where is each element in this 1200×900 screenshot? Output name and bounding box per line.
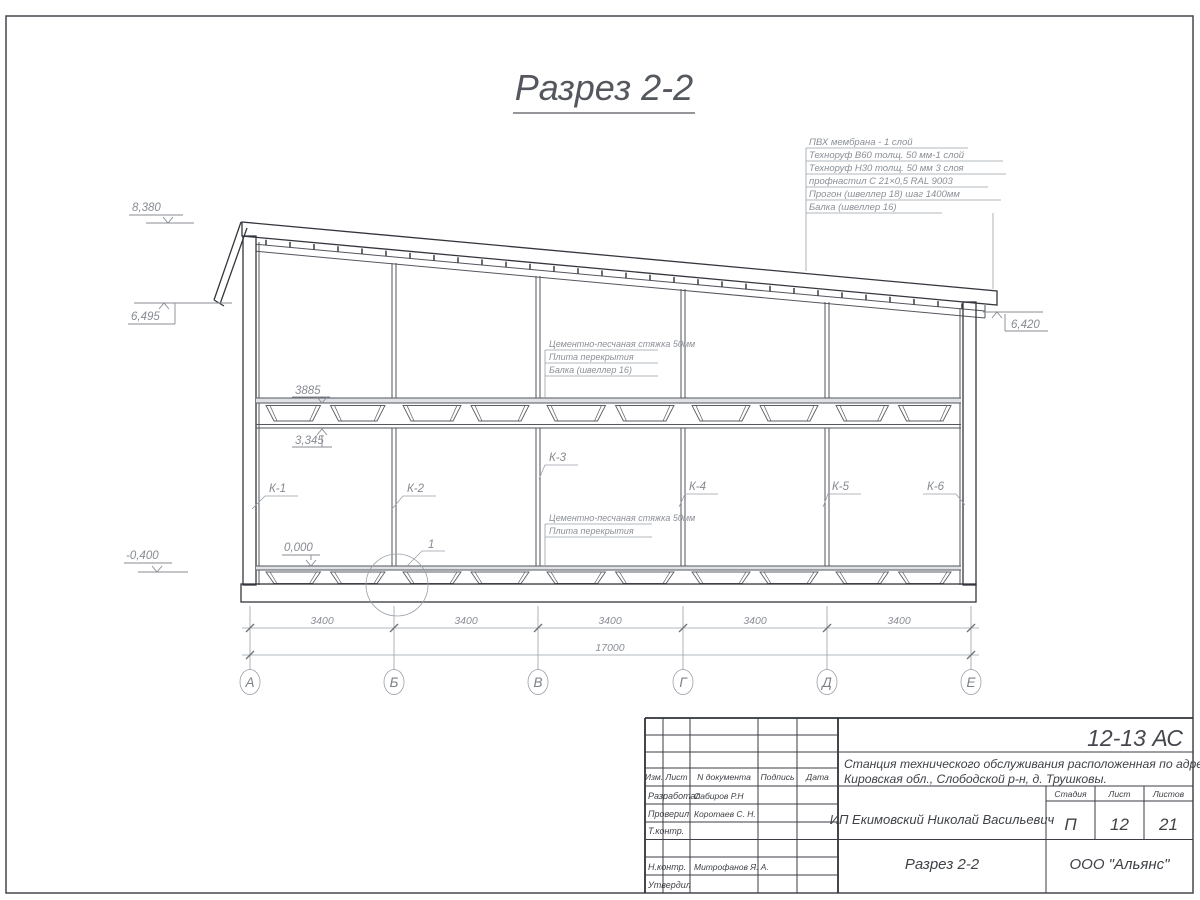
- axis-label: Е: [966, 675, 976, 690]
- elevation-value: 8,380: [132, 202, 161, 214]
- axis-label: Д: [820, 675, 832, 690]
- sheets-total: 21: [1158, 815, 1178, 834]
- sheets-label: Листов: [1152, 789, 1185, 799]
- bay-dim-label: 3400: [887, 615, 911, 627]
- page-title: Разрез 2-2: [515, 67, 693, 108]
- callout-line: ПВХ мембрана - 1 слой: [809, 137, 913, 148]
- tb-header-cell: Лист: [664, 772, 687, 782]
- column-label: К-5: [832, 481, 850, 493]
- tb-header-cell: Изм.: [645, 772, 663, 782]
- callout-line: Техноруф В60 толщ. 50 мм-1 слой: [809, 150, 965, 161]
- tb-role: Т.контр.: [648, 826, 684, 836]
- stage-label: Стадия: [1054, 789, 1087, 799]
- stage-value: П: [1064, 815, 1077, 834]
- callout-line: Балка (швеллер 16): [809, 202, 897, 213]
- callout-line: Плита перекрытия: [549, 526, 634, 536]
- callout-line: Цементно-песчаная стяжка 50мм: [549, 513, 695, 523]
- tb-role: Н.контр.: [648, 862, 686, 872]
- tb-header-cell: Дата: [805, 772, 829, 782]
- callout-line: Балка (швеллер 16): [549, 365, 632, 375]
- ground-floor-deck: [256, 566, 961, 570]
- tb-name: Митрофанов Я. А.: [694, 862, 769, 872]
- drawing-sheet: Разрез 2-2: [0, 0, 1200, 900]
- elevation-value: 6,495: [131, 311, 160, 323]
- client-name: ИП Екимовский Николай Васильевич: [830, 812, 1055, 827]
- elevation-value: 3885: [295, 385, 321, 397]
- axis-label: В: [533, 675, 542, 690]
- tb-header-cell: N документа: [697, 772, 751, 782]
- detail-number: 1: [428, 539, 434, 551]
- callout-line: профнастил С 21×0,5 RAL 9003: [809, 176, 953, 187]
- tb-name: Сабиров Р.Н: [694, 791, 744, 801]
- column-label: К-3: [549, 452, 567, 464]
- total-dim-label: 17000: [595, 642, 624, 654]
- organization-name: ООО "Альянс": [1070, 856, 1171, 873]
- drawing-title: Разрез 2-2: [513, 67, 695, 113]
- axis-label: А: [244, 675, 254, 690]
- callout-line: Плита перекрытия: [549, 352, 634, 362]
- elevation-value: 3,345: [295, 435, 324, 447]
- callout-line: Цементно-песчаная стяжка 50мм: [549, 339, 695, 349]
- elevation-value: -0,400: [126, 550, 159, 562]
- tb-role: Разработал: [648, 791, 700, 801]
- tb-name: Коротаев С. Н.: [694, 809, 756, 819]
- project-description-line2: Кировская обл., Слободской р-н, д. Трушк…: [844, 772, 1107, 786]
- callout-line: Техноруф Н30 толщ. 50 мм 3 слоя: [809, 163, 964, 174]
- tb-role: Утвердил: [647, 880, 691, 890]
- bay-dim-label: 3400: [454, 615, 478, 627]
- column-label: К-6: [927, 481, 945, 493]
- bay-dim-label: 3400: [310, 615, 334, 627]
- tb-header-cell: Подпись: [760, 772, 795, 782]
- elevation-value: 6,420: [1011, 319, 1040, 331]
- column-label: К-1: [269, 483, 286, 495]
- sheet-label: Лист: [1107, 789, 1130, 799]
- elevation-value: 0,000: [284, 542, 313, 554]
- bay-dim-label: 3400: [743, 615, 767, 627]
- callout-line: Прогон (швеллер 18) шаг 1400мм: [809, 189, 960, 200]
- axis-label: Б: [390, 675, 399, 690]
- column-label: К-4: [689, 481, 706, 493]
- project-description-line1: Станция технического обслуживания распол…: [844, 757, 1200, 771]
- tb-role: Проверил: [648, 809, 689, 819]
- sheet-number: 12: [1110, 815, 1129, 834]
- bay-dim-label: 3400: [598, 615, 622, 627]
- column-label: К-2: [407, 483, 425, 495]
- sheet-title: Разрез 2-2: [905, 856, 980, 873]
- document-code: 12-13 АС: [1087, 725, 1183, 751]
